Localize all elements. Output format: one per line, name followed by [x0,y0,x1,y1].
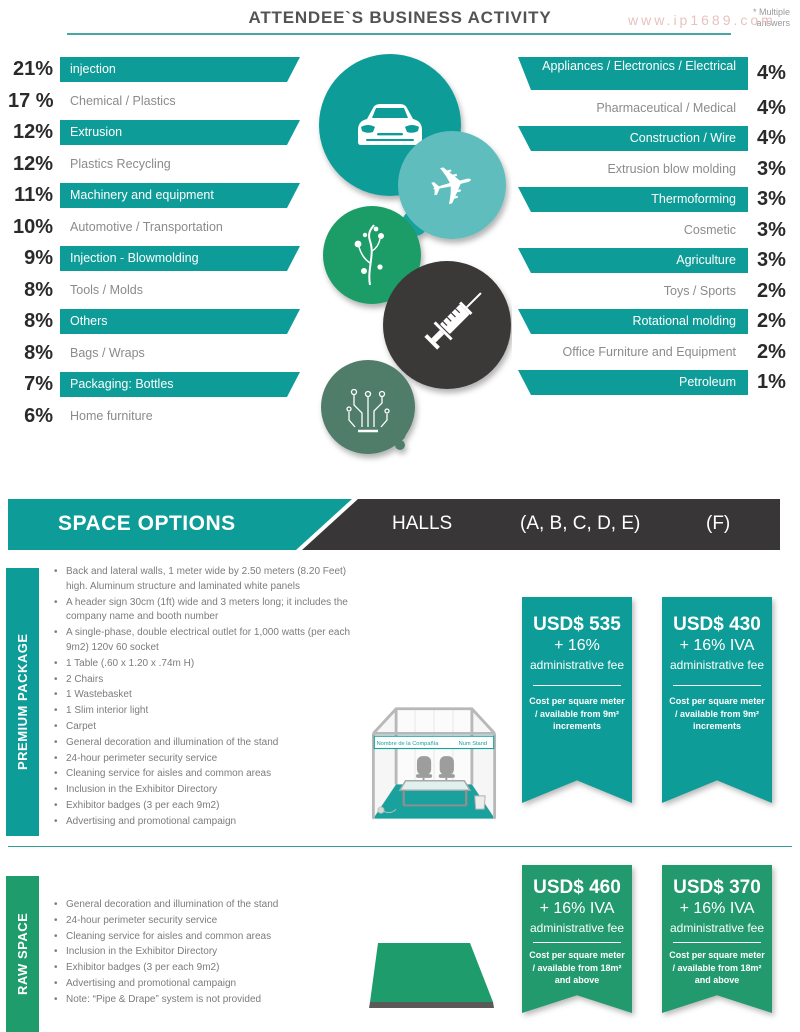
activity-row: 7% Packaging: Bottles [8,372,300,397]
activity-percent: 10% [8,216,60,239]
premium-bullet: Back and lateral walls, 1 meter wide by … [53,565,367,595]
activity-row: Pharmaceutical / Medical 4% [518,96,794,121]
ribbon-tax: + 16% IVA [662,900,772,918]
activity-percent: 8% [8,342,60,365]
activity-row: 11% Machinery and equipment [8,183,300,208]
medical-circle [383,261,511,389]
activity-label: Packaging: Bottles [60,372,300,397]
activity-row: Thermoforming 3% [518,187,794,212]
activity-label: injection [60,57,300,82]
raw-bullet: Cleaning service for aisles and common a… [53,930,367,945]
activity-row: 10% Automotive / Transportation [8,215,300,240]
space-options-title: SPACE OPTIONS [58,512,236,536]
activity-row: 21% injection [8,57,300,82]
ribbon-price: USD$ 370 [662,877,772,899]
activity-row: 12% Extrusion [8,120,300,145]
premium-bullet: 1 Slim interior light [53,704,367,719]
price-ribbon: USD$ 535 + 16% administrative fee Cost p… [522,597,632,803]
activity-percent: 4% [748,97,794,120]
premium-price-ribbons: USD$ 535 + 16% administrative fee Cost p… [522,597,772,803]
space-options-banner: SPACE OPTIONS HALLS (A, B, C, D, E) (F) [0,499,800,550]
activity-percent: 3% [748,158,794,181]
premium-bullet: Exhibitor badges (3 per each 9m2) [53,799,367,814]
activity-row: 6% Home furniture [8,404,300,429]
ribbon-divider [533,942,621,943]
activity-label: Others [60,309,300,334]
activity-row: Office Furniture and Equipment 2% [518,340,794,365]
raw-bullet: Inclusion in the Exhibitor Directory [53,945,367,960]
aviation-circle: ✈ [398,131,506,239]
watermark: www.ip1689.com [628,12,776,28]
price-ribbon: USD$ 430 + 16% IVA administrative fee Co… [662,597,772,803]
premium-bullet: 1 Wastebasket [53,688,367,703]
carpet-illustration [360,935,500,1015]
activity-percent: 12% [8,153,60,176]
activity-label: Construction / Wire [518,126,748,151]
premium-bullet: Inclusion in the Exhibitor Directory [53,783,367,798]
activity-label: Appliances / Electronics / Electrical [518,57,748,90]
raw-bullet: Note: “Pipe & Drape” system is not provi… [53,993,367,1008]
activity-percent: 6% [8,405,60,428]
premium-package-label: PREMIUM PACKAGE [6,568,39,836]
ribbon-note: Cost per square meter / available from 9… [522,695,632,733]
premium-bullet: 1 Table (.60 x 1.20 x .74m H) [53,657,367,672]
ribbon-tax: + 16% [522,637,632,655]
ribbon-divider [673,942,761,943]
ribbon-tax: + 16% IVA [662,637,772,655]
activity-label: Injection - Blowmolding [60,246,300,271]
ribbon-divider [533,685,621,686]
premium-bullet: General decoration and illumination of t… [53,736,367,751]
activity-row: 8% Tools / Molds [8,278,300,303]
raw-bullet: General decoration and illumination of t… [53,898,367,913]
raw-bullet: Exhibitor badges (3 per each 9m2) [53,961,367,976]
activity-row: Toys / Sports 2% [518,279,794,304]
raw-space-label: RAW SPACE [6,876,39,1032]
ribbon-price: USD$ 460 [522,877,632,899]
price-ribbon: USD$ 370 + 16% IVA administrative fee Co… [662,865,772,1013]
ribbon-divider [673,685,761,686]
activity-label: Office Furniture and Equipment [518,340,748,365]
activity-percent: 4% [748,127,794,150]
activity-percent: 2% [748,280,794,303]
premium-bullet: 2 Chairs [53,673,367,688]
activity-percent: 8% [8,279,60,302]
activity-label: Plastics Recycling [60,152,300,177]
activity-label: Extrusion blow molding [518,157,748,182]
ribbon-fee: administrative fee [522,658,632,672]
booth-wastebasket [475,796,485,809]
activity-label: Cosmetic [518,218,748,243]
activity-percent: 3% [748,249,794,272]
activity-row: Agriculture 3% [518,248,794,273]
activity-label: Extrusion [60,120,300,145]
price-ribbon: USD$ 460 + 16% IVA administrative fee Co… [522,865,632,1013]
activity-label: Rotational molding [518,309,748,334]
activity-row: 9% Injection - Blowmolding [8,246,300,271]
activity-row: Petroleum 1% [518,370,794,395]
section-divider [8,846,792,847]
booth-sign-stand: Num Stand [459,741,487,747]
activity-row: Construction / Wire 4% [518,126,794,151]
activity-percent: 3% [748,188,794,211]
activity-label: Pharmaceutical / Medical [518,96,748,121]
activity-percent: 17 % [8,90,60,113]
halls-f-label: (F) [706,513,730,535]
ribbon-note: Cost per square meter / available from 1… [522,949,632,987]
activity-percent: 9% [8,247,60,270]
ribbon-fee: administrative fee [662,921,772,935]
activity-percent: 12% [8,121,60,144]
premium-bullet-list: Back and lateral walls, 1 meter wide by … [53,565,367,831]
activity-label: Automotive / Transportation [60,215,300,240]
activity-percent: 8% [8,310,60,333]
halls-label: HALLS [392,513,452,535]
activity-label: Tools / Molds [60,278,300,303]
title-underline [67,33,731,35]
activity-percent: 21% [8,58,60,81]
ribbon-price: USD$ 430 [662,614,772,636]
ribbon-fee: administrative fee [522,921,632,935]
activity-row: Rotational molding 2% [518,309,794,334]
activity-label: Home furniture [60,404,300,429]
activity-row: 8% Others [8,309,300,334]
raw-price-ribbons: USD$ 460 + 16% IVA administrative fee Co… [522,865,772,1013]
activity-label: Thermoforming [518,187,748,212]
activity-percent: 7% [8,373,60,396]
ribbon-fee: administrative fee [662,658,772,672]
raw-bullet: 24-hour perimeter security service [53,914,367,929]
booth-sign-company: Nombre de la Compañía [377,741,440,747]
activity-percent: 2% [748,341,794,364]
activity-percent: 1% [748,371,794,394]
activity-percent: 3% [748,219,794,242]
activity-row: 8% Bags / Wraps [8,341,300,366]
activity-row: 17 % Chemical / Plastics [8,89,300,114]
ribbon-note: Cost per square meter / available from 9… [662,695,772,733]
ribbon-note: Cost per square meter / available from 1… [662,949,772,987]
activity-row: Cosmetic 3% [518,218,794,243]
premium-bullet: Carpet [53,720,367,735]
activity-label: Bags / Wraps [60,341,300,366]
business-activity-graphic: ✈ [298,46,512,466]
activity-label: Petroleum [518,370,748,395]
ribbon-price: USD$ 535 [522,614,632,636]
halls-main-list: (A, B, C, D, E) [520,513,640,535]
activity-row: Extrusion blow molding 3% [518,157,794,182]
booth-illustration: Nombre de la Compañía Num Stand [358,686,510,830]
activity-row: 12% Plastics Recycling [8,152,300,177]
activity-percent: 2% [748,310,794,333]
activity-right-column: Appliances / Electronics / Electrical 4%… [518,57,794,401]
activity-left-column: 21% injection 17 % Chemical / Plastics 1… [8,57,300,435]
activity-percent: 4% [748,62,794,85]
premium-bullet: 24-hour perimeter security service [53,752,367,767]
activity-label: Toys / Sports [518,279,748,304]
activity-label: Chemical / Plastics [60,89,300,114]
activity-row: Appliances / Electronics / Electrical 4% [518,57,794,90]
ribbon-tax: + 16% IVA [522,900,632,918]
activity-label: Machinery and equipment [60,183,300,208]
raw-bullet-list: General decoration and illumination of t… [53,898,367,1009]
activity-percent: 11% [8,184,60,207]
activity-label: Agriculture [518,248,748,273]
premium-bullet: Advertising and promotional campaign [53,815,367,830]
premium-bullet: Cleaning service for aisles and common a… [53,767,367,782]
premium-bullet: A single-phase, double electrical outlet… [53,626,367,656]
premium-bullet: A header sign 30cm (1ft) wide and 3 mete… [53,596,367,626]
electronics-circle [321,360,415,454]
raw-bullet: Advertising and promotional campaign [53,977,367,992]
